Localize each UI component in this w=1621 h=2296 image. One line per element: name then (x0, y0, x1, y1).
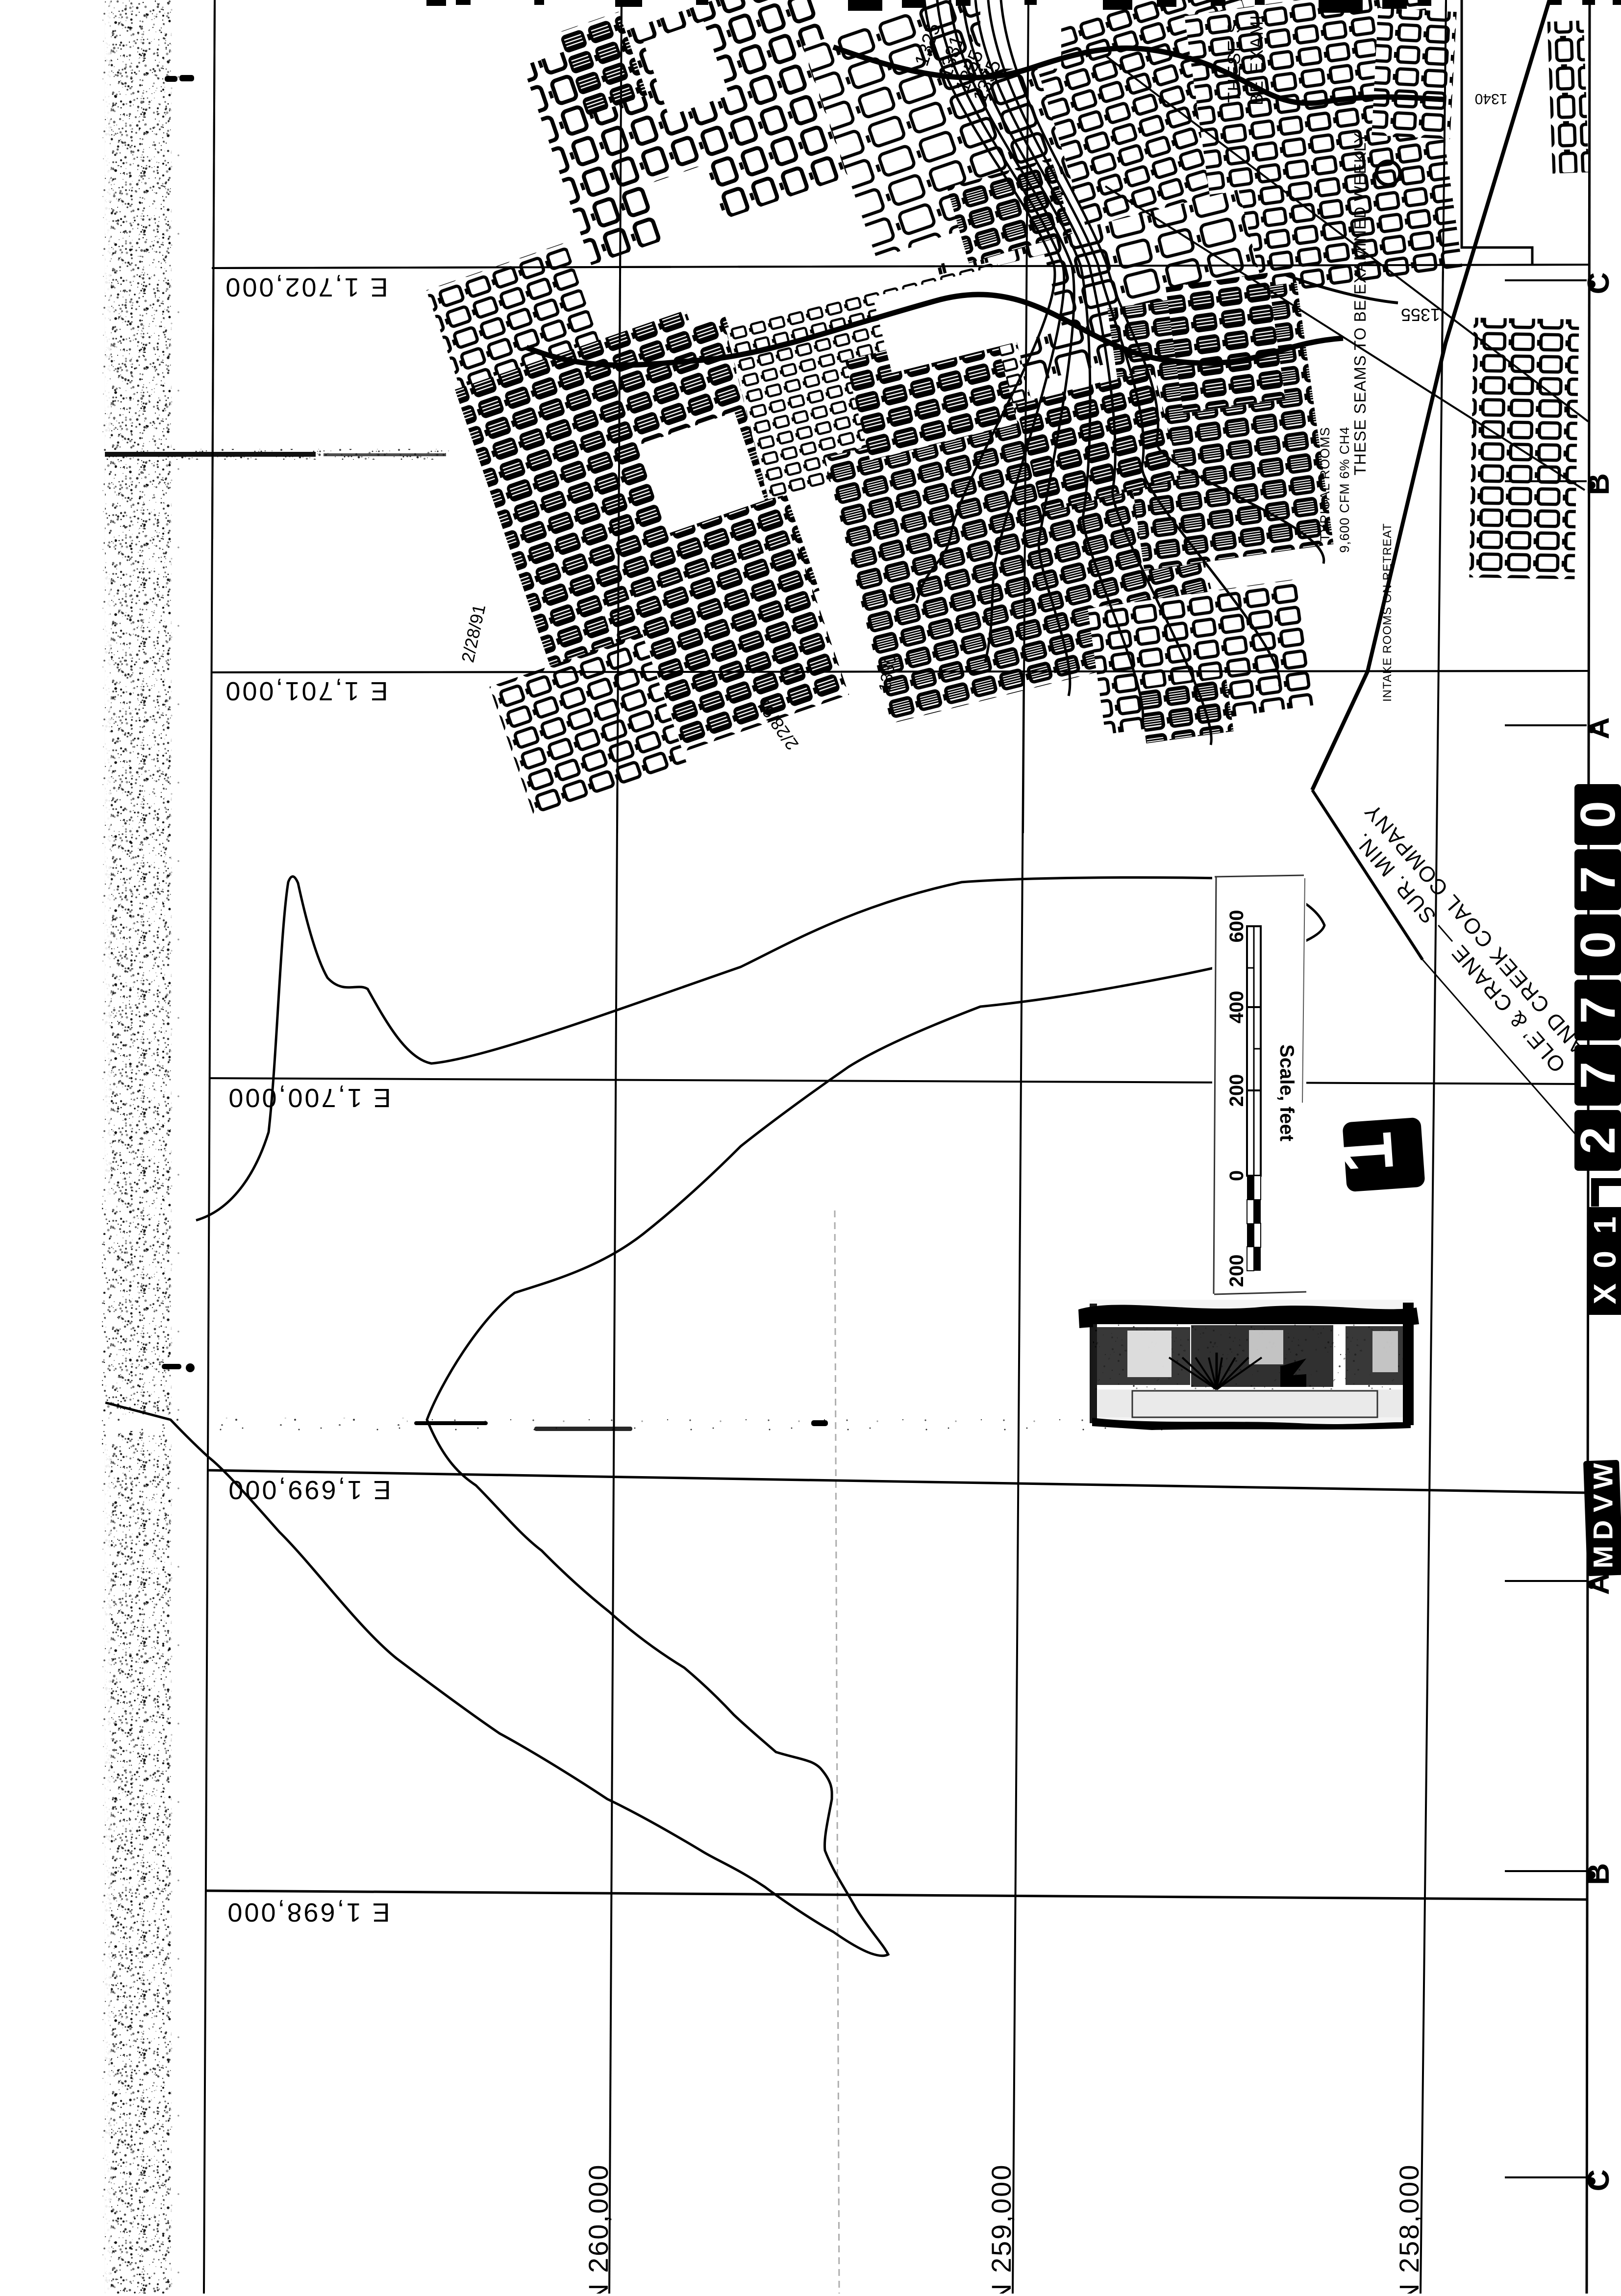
svg-text:E 1,701,000: E 1,701,000 (224, 676, 388, 706)
svg-text:N 260,000: N 260,000 (583, 2164, 614, 2294)
svg-text:400: 400 (1226, 991, 1247, 1024)
svg-text:1355: 1355 (1401, 305, 1440, 325)
svg-text:V: V (1588, 1494, 1619, 1512)
svg-text:C: C (1582, 2170, 1616, 2192)
svg-text:E 1,698,000: E 1,698,000 (225, 1898, 390, 1927)
svg-text:600: 600 (1226, 910, 1247, 943)
svg-text:0: 0 (1571, 931, 1621, 959)
svg-text:N 259,000: N 259,000 (986, 2164, 1017, 2294)
svg-text:7: 7 (1571, 866, 1621, 893)
svg-text:A: A (1582, 1573, 1616, 1595)
svg-text:BE EXAMI: BE EXAMI (1247, 14, 1267, 105)
svg-text:M: M (1588, 1546, 1619, 1569)
svg-text:0: 0 (1571, 801, 1621, 828)
svg-text:200: 200 (1226, 1255, 1247, 1287)
svg-text:0: 0 (1587, 1251, 1621, 1268)
svg-text:B: B (1582, 1863, 1616, 1885)
svg-text:D: D (1588, 1520, 1619, 1540)
svg-text:E 1,700,000: E 1,700,000 (226, 1083, 391, 1112)
svg-text:C: C (1582, 272, 1616, 295)
svg-text:7: 7 (1571, 1062, 1621, 1089)
svg-text:B: B (1582, 473, 1616, 495)
svg-text:Scale, feet: Scale, feet (1276, 1044, 1297, 1141)
svg-text:THESE S: THESE S (1224, 21, 1244, 103)
svg-text:1: 1 (1587, 1216, 1621, 1234)
svg-text:N 258,000: N 258,000 (1394, 2164, 1424, 2294)
svg-text:INTAKE ROOMS ON RETREAT: INTAKE ROOMS ON RETREAT (1381, 523, 1394, 702)
svg-text:X: X (1587, 1283, 1621, 1304)
svg-text:1: 1 (1324, 1129, 1409, 1176)
svg-text:1340: 1340 (1475, 91, 1508, 107)
svg-text:W: W (1588, 1463, 1619, 1489)
svg-text:TYPICAL ROOMS: TYPICAL ROOMS (1318, 427, 1332, 542)
svg-text:A: A (1582, 717, 1616, 740)
svg-text:0: 0 (1226, 1170, 1247, 1181)
svg-text:2: 2 (1571, 1127, 1621, 1154)
svg-text:7: 7 (1571, 996, 1621, 1024)
svg-text:E 1,702,000: E 1,702,000 (224, 272, 388, 302)
svg-text:THESE SEAMS TO BE EXAMINED WEE: THESE SEAMS TO BE EXAMINED WEEKLY (1351, 132, 1369, 475)
svg-text:9,600 CFM 6% CH4: 9,600 CFM 6% CH4 (1337, 426, 1352, 553)
svg-text:200: 200 (1226, 1074, 1247, 1107)
